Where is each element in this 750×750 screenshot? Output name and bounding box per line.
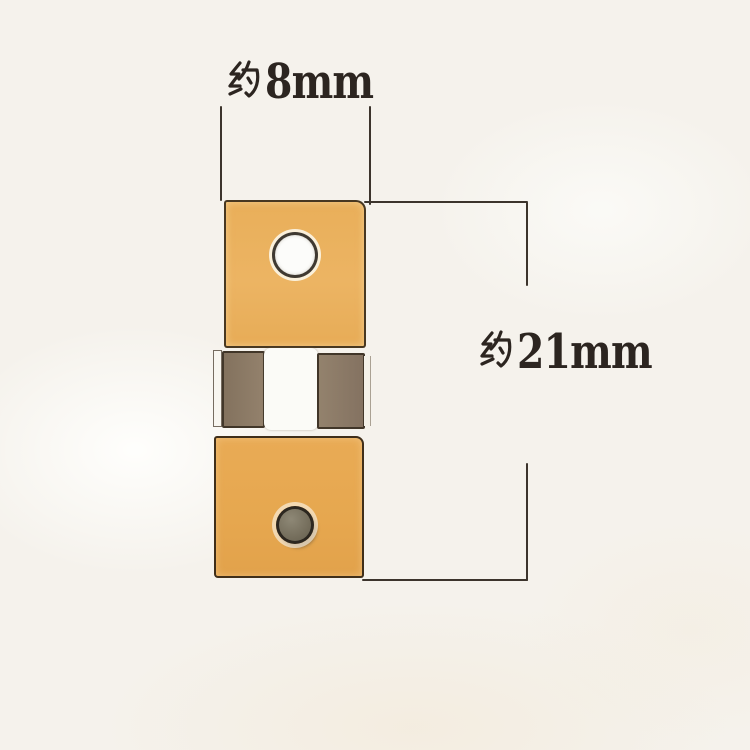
- right-edge-highlight: [364, 356, 371, 426]
- left-edge-highlight: [213, 350, 222, 427]
- spring-clamp-right: [317, 353, 365, 429]
- product-dimension-photo: 8mm 21mm: [0, 0, 750, 750]
- mounting-hole: [272, 232, 318, 278]
- rivet: [276, 506, 314, 544]
- bottom-brass-block: [214, 436, 364, 578]
- top-brass-block: [224, 200, 366, 348]
- suspension-spring-part: [0, 0, 750, 750]
- spring-center-slot: [264, 348, 318, 430]
- spring-clamp-left: [222, 351, 265, 428]
